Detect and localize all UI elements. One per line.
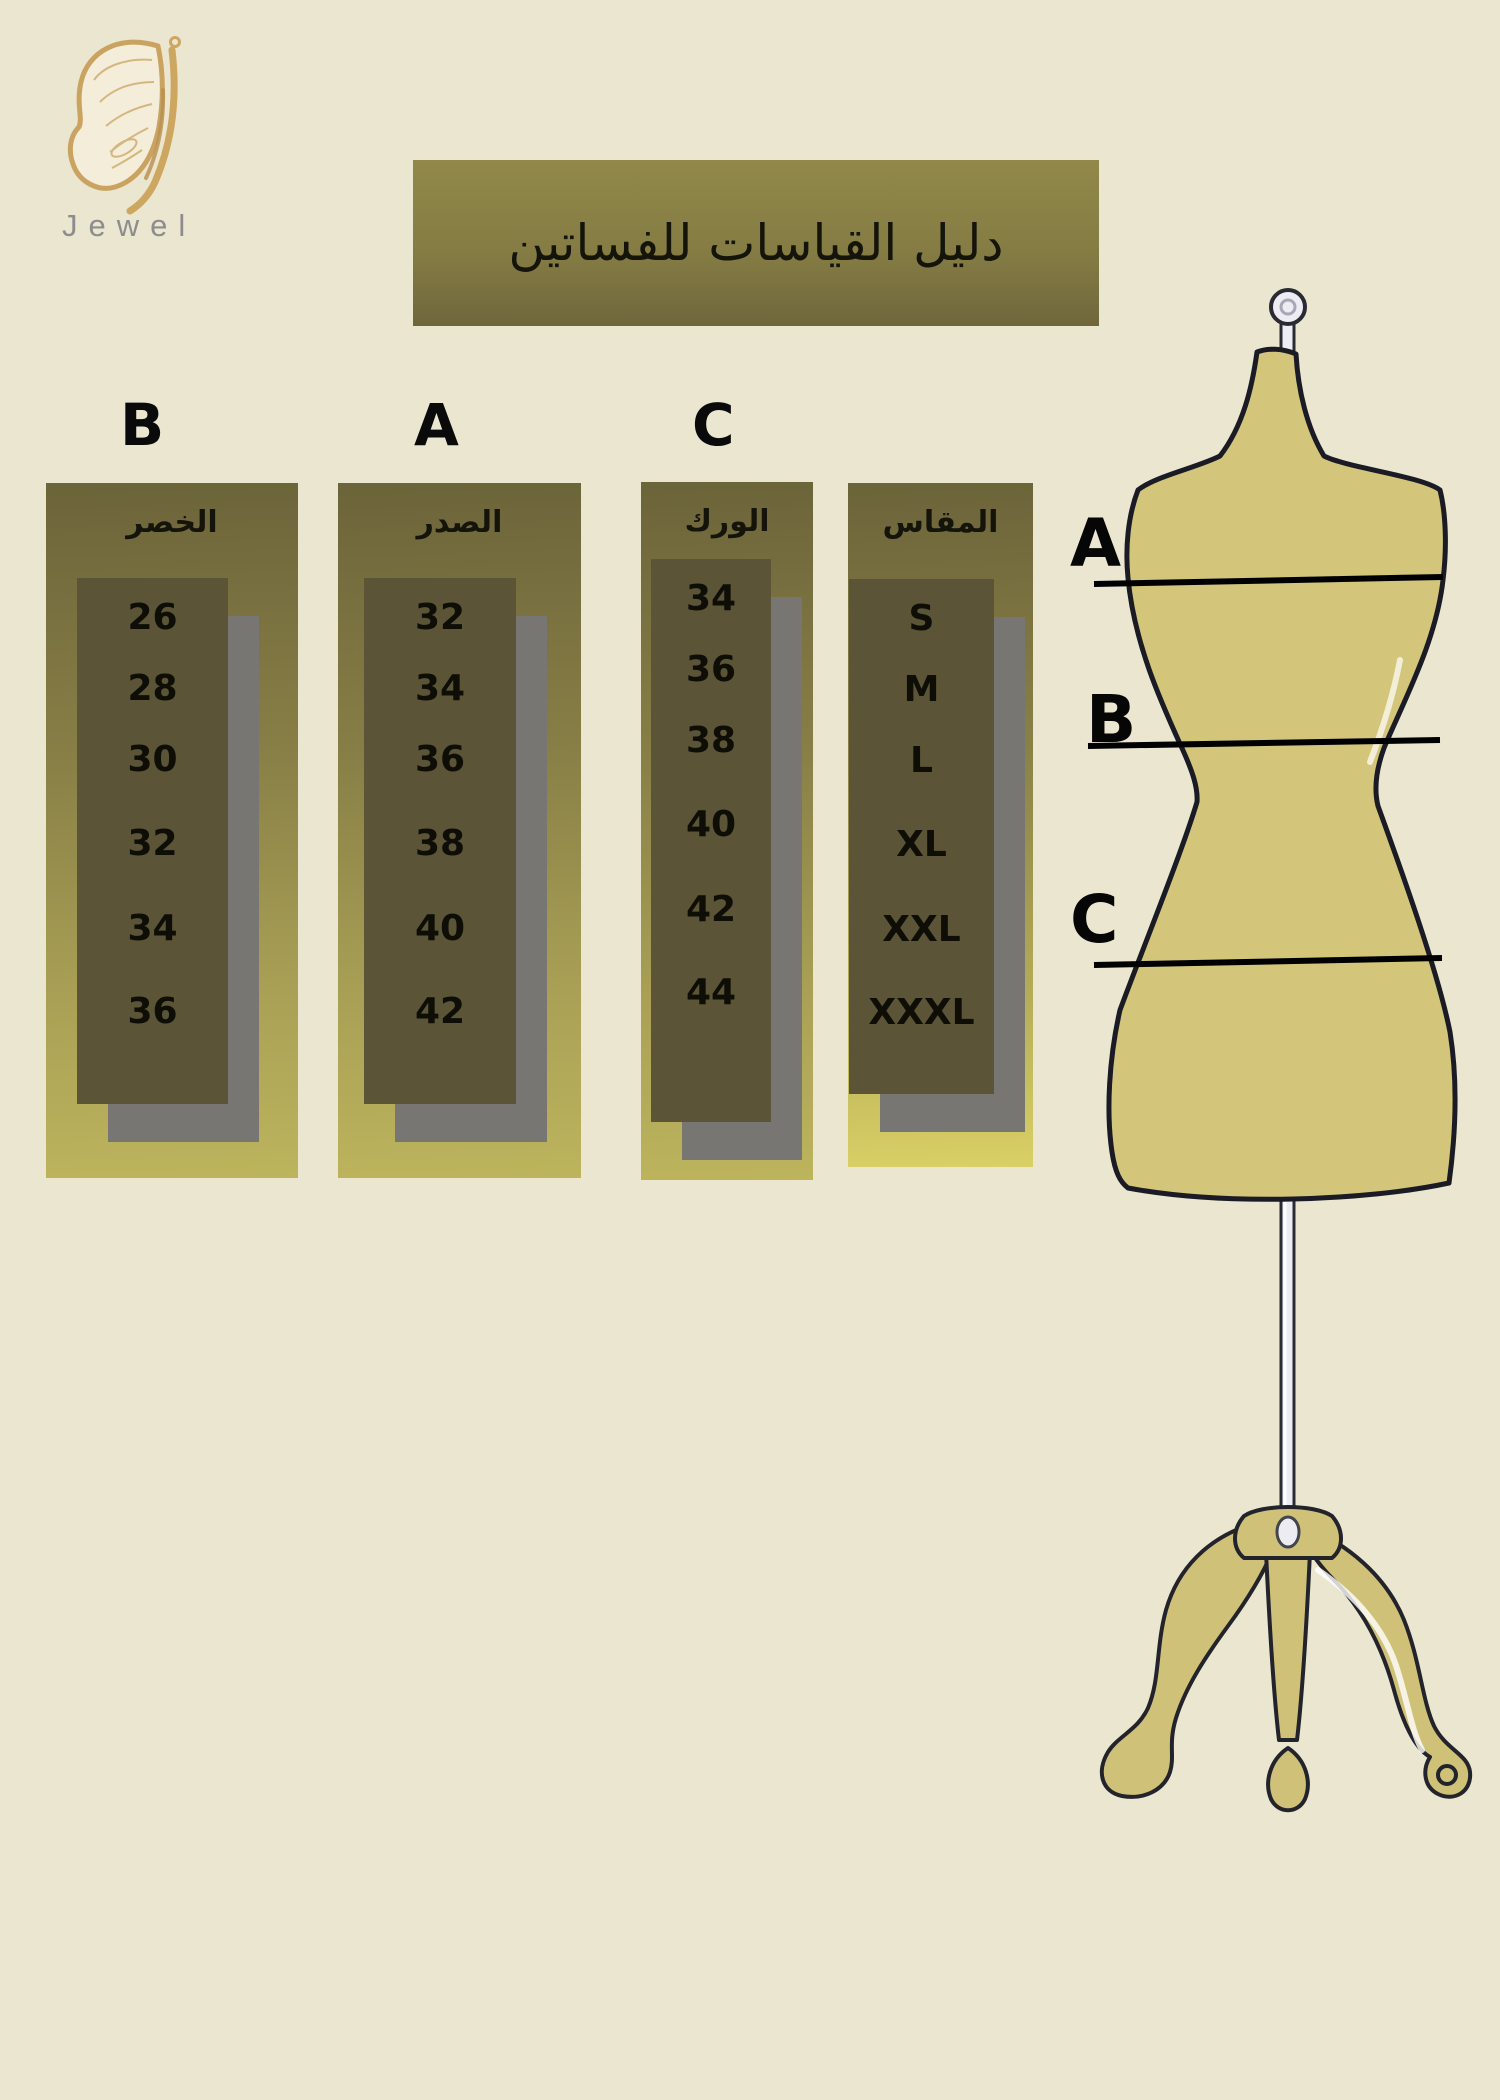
brand-logo: Jewel: [60, 30, 280, 260]
size-value: 26: [77, 596, 228, 640]
size-panel-0: الخصر262830323436: [46, 483, 298, 1178]
size-value: 28: [77, 667, 228, 711]
bust-label: A: [1070, 505, 1121, 582]
values-box: 323436384042: [364, 578, 516, 1104]
size-value: 40: [651, 803, 771, 847]
page: { "brand": { "name": "Jewel", "logo_icon…: [0, 0, 1500, 2100]
title-banner: دليل القياسات للفساتين: [413, 160, 1099, 326]
size-value: 34: [77, 907, 228, 951]
size-value: 36: [77, 990, 228, 1034]
size-value: S: [849, 597, 994, 641]
size-value: 44: [651, 971, 771, 1015]
dress-form-body: [1109, 349, 1455, 1199]
values-box: 343638404244: [651, 559, 771, 1122]
page-title: دليل القياسات للفساتين: [508, 214, 1003, 272]
column-letter-b: B: [120, 396, 164, 454]
hip-label: C: [1070, 881, 1118, 958]
column-header: المقاس: [848, 505, 1033, 540]
values-box: SMLXLXXLXXXL: [849, 579, 994, 1094]
size-panel-3: المقاسSMLXLXXLXXXL: [848, 483, 1033, 1167]
column-letter-a: A: [414, 396, 459, 454]
column-header: الخصر: [46, 505, 298, 540]
size-value: 34: [364, 667, 516, 711]
size-value: M: [849, 668, 994, 712]
column-letter-c: C: [692, 396, 735, 454]
size-value: 30: [77, 738, 228, 782]
tripod-base-icon: [1102, 1507, 1470, 1810]
size-value: 36: [651, 648, 771, 692]
size-value: 38: [651, 719, 771, 763]
size-value: 32: [77, 822, 228, 866]
size-value: 38: [364, 822, 516, 866]
size-value: 42: [651, 888, 771, 932]
size-value: XXL: [849, 908, 994, 952]
size-panel-1: الصدر323436384042: [338, 483, 581, 1178]
column-header: الورك: [641, 504, 813, 539]
finial-knob-icon: [1271, 290, 1305, 354]
brand-name: Jewel: [62, 208, 196, 244]
size-panel-2: الورك343638404244: [641, 482, 813, 1180]
size-value: 40: [364, 907, 516, 951]
size-value: L: [849, 739, 994, 783]
column-header: الصدر: [338, 505, 581, 540]
size-value: 36: [364, 738, 516, 782]
size-value: XXXL: [849, 991, 994, 1035]
stand-pole-icon: [1281, 1190, 1294, 1520]
size-value: 42: [364, 990, 516, 1034]
values-box: 262830323436: [77, 578, 228, 1104]
size-value: 32: [364, 596, 516, 640]
waist-label: B: [1086, 681, 1136, 758]
size-value: 34: [651, 577, 771, 621]
size-value: XL: [849, 823, 994, 867]
dress-form-illustration: A B C: [1030, 230, 1500, 1920]
